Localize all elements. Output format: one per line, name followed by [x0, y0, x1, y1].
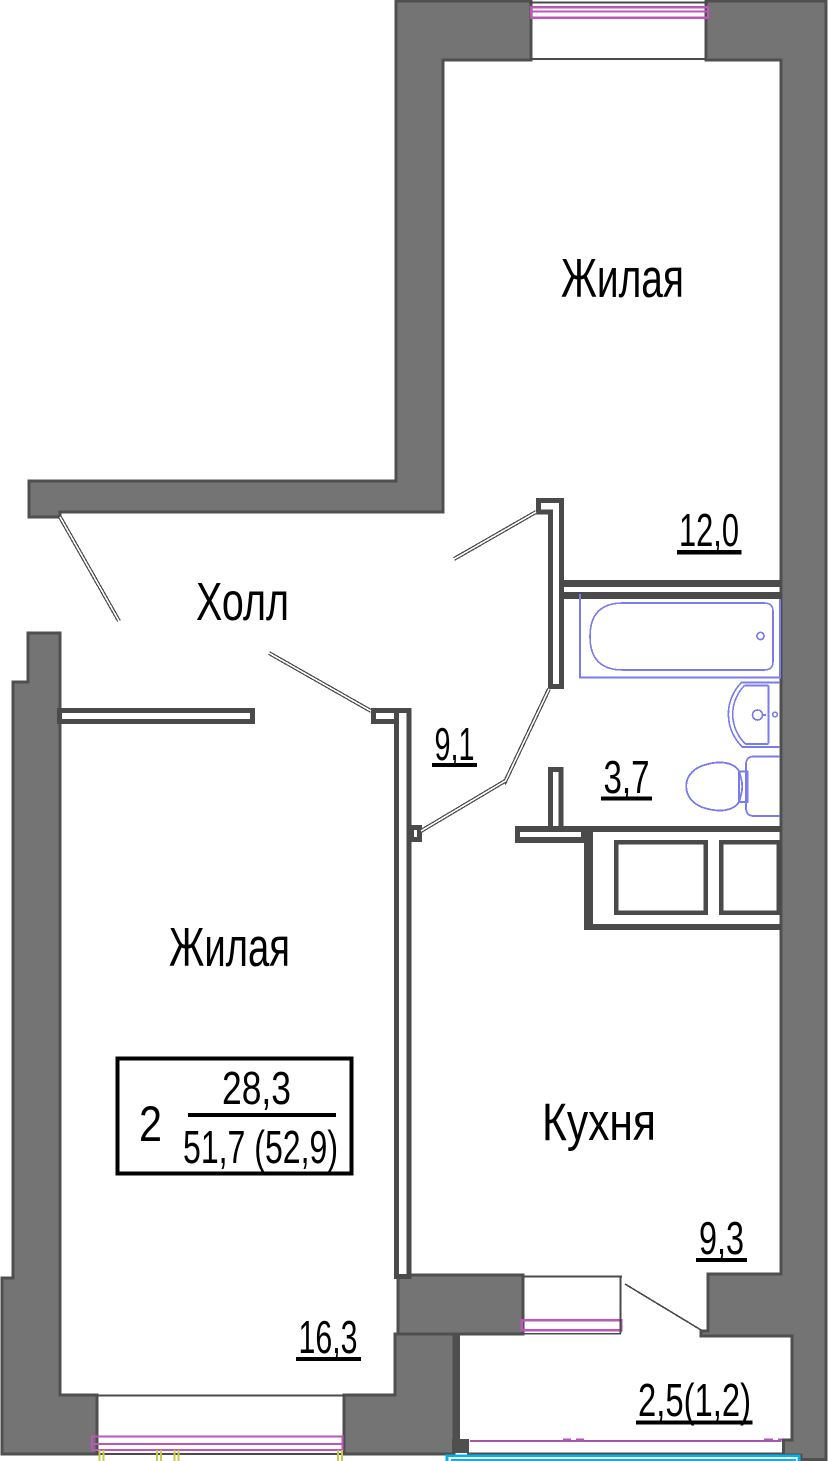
svg-text:9,3: 9,3 — [699, 1212, 744, 1264]
svg-text:9,1: 9,1 — [435, 718, 475, 770]
svg-text:Жилая: Жилая — [561, 247, 684, 309]
svg-text:Кухня: Кухня — [542, 1093, 656, 1152]
svg-text:16,3: 16,3 — [299, 1311, 358, 1363]
svg-text:Холл: Холл — [196, 572, 289, 632]
svg-text:28,3: 28,3 — [222, 1062, 291, 1114]
svg-text:51,7 (52,9): 51,7 (52,9) — [183, 1121, 338, 1173]
svg-text:Жилая: Жилая — [169, 916, 290, 978]
svg-text:3,7: 3,7 — [604, 751, 650, 803]
svg-text:2,5(1,2): 2,5(1,2) — [638, 1374, 751, 1426]
svg-text:12,0: 12,0 — [679, 504, 739, 556]
svg-text:2: 2 — [139, 1096, 162, 1152]
